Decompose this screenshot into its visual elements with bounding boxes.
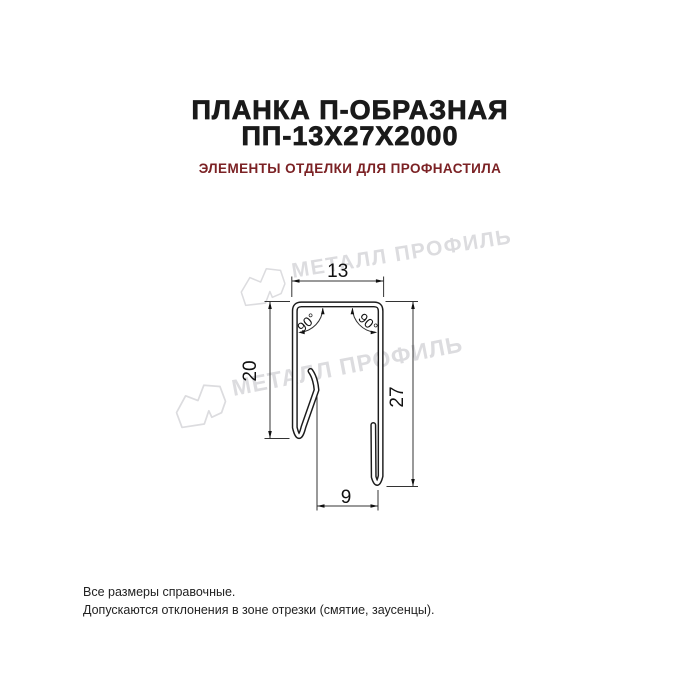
page-title-line2: ПП-13Х27Х2000 bbox=[0, 123, 700, 149]
dim-bottom-width: 9 bbox=[341, 487, 352, 508]
dim-left-height: 20 bbox=[240, 360, 261, 381]
arrow-up-icon bbox=[351, 308, 355, 315]
arrow-down-icon bbox=[411, 479, 415, 487]
dim-left-lines bbox=[265, 302, 291, 439]
header: ПЛАНКА П-ОБРАЗНАЯ ПП-13Х27Х2000 ЭЛЕМЕНТЫ… bbox=[0, 97, 700, 176]
footer-note-line2: Допускаются отклонения в зоне отрезки (с… bbox=[83, 602, 435, 620]
arrow-up-icon bbox=[268, 302, 272, 310]
dim-right-height: 27 bbox=[387, 386, 408, 407]
footer-notes: Все размеры справочные. Допускаются откл… bbox=[83, 584, 435, 619]
arrow-left-icon bbox=[317, 504, 325, 508]
arrow-left-icon bbox=[292, 279, 300, 283]
arrow-up-icon bbox=[411, 302, 415, 310]
dim-top-width: 13 bbox=[327, 261, 348, 282]
arrow-down-icon bbox=[268, 431, 272, 439]
footer-note-line1: Все размеры справочные. bbox=[83, 584, 435, 602]
profile-drawing: 13 20 27 9 bbox=[230, 225, 430, 525]
angle-right: 90° bbox=[351, 308, 381, 335]
catalog-page: МЕТАЛЛ ПРОФИЛЬ МЕТАЛЛ ПРОФИЛЬ ПЛАНКА П-О… bbox=[0, 0, 700, 700]
arrow-right-icon bbox=[376, 279, 384, 283]
arrow-right-icon bbox=[371, 504, 379, 508]
page-subtitle: ЭЛЕМЕНТЫ ОТДЕЛКИ ДЛЯ ПРОФНАСТИЛА bbox=[0, 161, 700, 176]
angle-left-label: 90° bbox=[294, 310, 319, 335]
metall-profil-logo-icon bbox=[171, 379, 230, 430]
arrow-up-icon bbox=[321, 308, 325, 315]
angle-right-label: 90° bbox=[355, 310, 380, 335]
angle-left: 90° bbox=[294, 308, 324, 335]
page-title-line1: ПЛАНКА П-ОБРАЗНАЯ bbox=[0, 97, 700, 123]
